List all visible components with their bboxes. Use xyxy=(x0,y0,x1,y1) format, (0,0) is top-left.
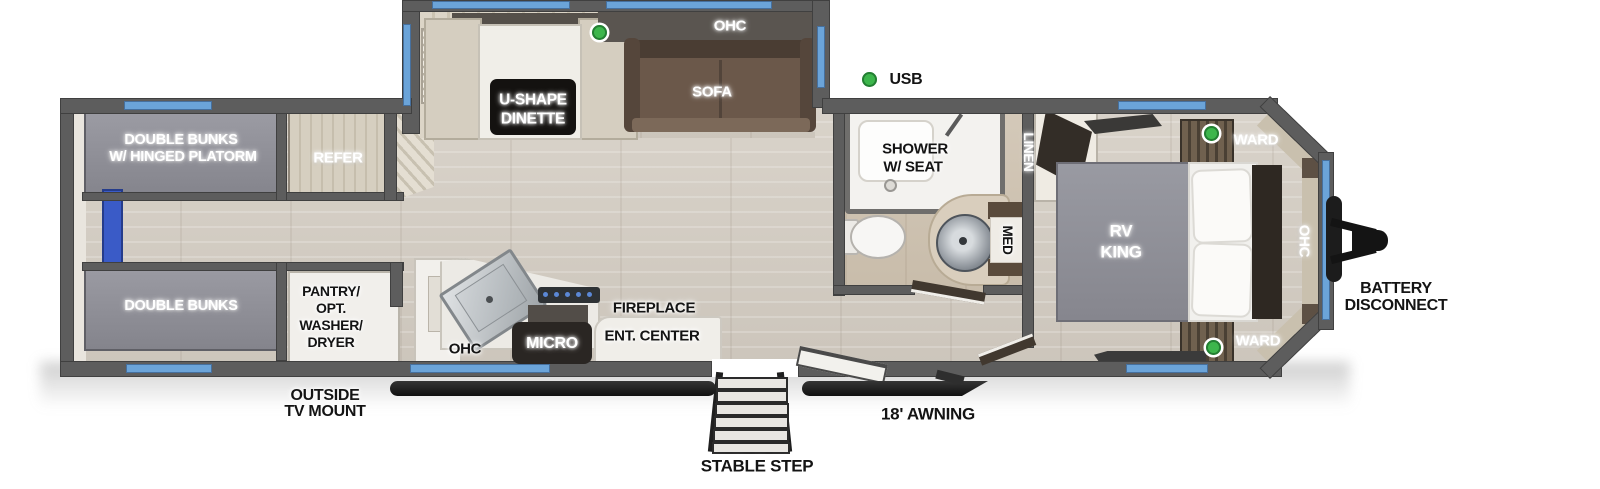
stove-knob-1 xyxy=(543,292,548,297)
pillow-top xyxy=(1191,168,1254,244)
headboard xyxy=(1252,165,1282,319)
med-cabinet-label: MED xyxy=(1000,225,1014,254)
awning-label: 18' AWNING xyxy=(881,406,975,423)
double-bunks-bottom-label: DOUBLE BUNKS xyxy=(124,299,237,314)
wardrobe-top-label: WARD xyxy=(1234,133,1279,148)
rear-divider-wall-upper-h xyxy=(82,192,404,201)
dinette-label-line2: DINETTE xyxy=(501,111,565,127)
ent-center-label: ENT. CENTER xyxy=(604,329,699,344)
toilet-bowl xyxy=(850,215,906,259)
shower-label-line2: W/ SEAT xyxy=(883,160,942,175)
step-tread-4 xyxy=(714,416,789,429)
awning-bar-left xyxy=(390,381,716,396)
slideout-window-right xyxy=(817,26,825,88)
slideout-window-top1 xyxy=(432,1,570,9)
rear-divider-wall-v1a xyxy=(276,106,287,201)
top-wall-rear xyxy=(60,98,412,114)
vanity-sink-drain xyxy=(959,237,967,245)
led-dot-ward-top xyxy=(1204,126,1219,141)
battery-disconnect-label-line1: BATTERY xyxy=(1360,281,1432,297)
shower-drain xyxy=(884,179,897,192)
led-dot-ward-bottom xyxy=(1206,340,1221,355)
battery-disconnect-label-line2: DISCONNECT xyxy=(1345,298,1448,314)
step-tread-3 xyxy=(715,403,789,416)
step-tread-1 xyxy=(716,377,788,390)
window-bedroom-bottom xyxy=(1126,364,1208,373)
linen-label: LINEN xyxy=(1021,132,1035,171)
kitchen-sink-drain xyxy=(486,296,493,303)
hitch-coupler xyxy=(1362,230,1388,251)
led-dot-usb xyxy=(862,72,877,87)
bathroom-bottom-wall-a xyxy=(833,285,915,295)
stove-knob-5 xyxy=(587,292,592,297)
bed-label-line2: KING xyxy=(1100,244,1141,261)
dinette-bench-left xyxy=(424,18,482,140)
pantry-label-line3: WASHER/ xyxy=(299,318,362,332)
rear-divider-wall-v1b xyxy=(276,262,287,361)
sofa-ohc-label: OHC xyxy=(714,19,746,34)
stove-knob-2 xyxy=(554,292,559,297)
pillow-bottom xyxy=(1191,242,1254,318)
wardrobe-bottom-label: WARD xyxy=(1236,334,1281,349)
kitchen-ohc-label: OHC xyxy=(449,342,481,357)
stable-step-label: STABLE STEP xyxy=(701,458,814,475)
slideout-window-top2 xyxy=(606,1,772,9)
led-dot-dinette xyxy=(592,25,607,40)
window-kitchen-bottom xyxy=(410,364,550,373)
outside-tv-label-line1: OUTSIDE xyxy=(290,388,359,404)
sofa-front-lip xyxy=(632,118,810,132)
window-bedroom-top xyxy=(1118,101,1206,110)
window-rear-top xyxy=(124,101,212,110)
stove-knob-3 xyxy=(565,292,570,297)
rear-divider-wall-lower-h xyxy=(82,262,404,271)
fireplace-label: FIREPLACE xyxy=(613,301,695,316)
step-tread-2 xyxy=(716,390,788,403)
microwave-label: MICRO xyxy=(526,336,578,352)
pantry-label-line4: DRYER xyxy=(308,335,355,349)
double-bunks-top-label-line1: DOUBLE BUNKS xyxy=(124,133,237,148)
bed-label-line1: RV xyxy=(1110,223,1133,240)
step-tread-6 xyxy=(712,442,790,454)
bathroom-left-wall xyxy=(833,106,845,296)
pantry-label-line2: OPT. xyxy=(316,301,346,315)
rear-exit-wall-lower xyxy=(390,262,403,307)
slideout-window-left xyxy=(403,24,411,106)
pantry-label-line1: PANTRY/ xyxy=(302,284,360,298)
step-tread-5 xyxy=(713,429,789,442)
front-ohc-label: OHC xyxy=(1297,225,1312,257)
usb-label: USB xyxy=(890,72,923,88)
double-bunks-top-label-line2: W/ HINGED PLATORM xyxy=(109,150,256,165)
rear-end-wall xyxy=(60,98,74,377)
entry-door-gap xyxy=(712,359,798,377)
shower-label-line1: SHOWER xyxy=(882,142,948,157)
window-rear-bottom xyxy=(126,364,212,373)
outside-tv-label-line2: TV MOUNT xyxy=(284,404,365,420)
dinette-label-line1: U-SHAPE xyxy=(499,92,567,108)
top-wall-front xyxy=(822,98,1278,114)
sofa-label: SOFA xyxy=(692,85,732,100)
tongue-jack xyxy=(1326,196,1342,282)
floorplan-canvas: DOUBLE BUNKS W/ HINGED PLATORM DOUBLE BU… xyxy=(0,0,1600,489)
refrigerator-label: REFER xyxy=(313,151,362,166)
stove-knob-4 xyxy=(576,292,581,297)
